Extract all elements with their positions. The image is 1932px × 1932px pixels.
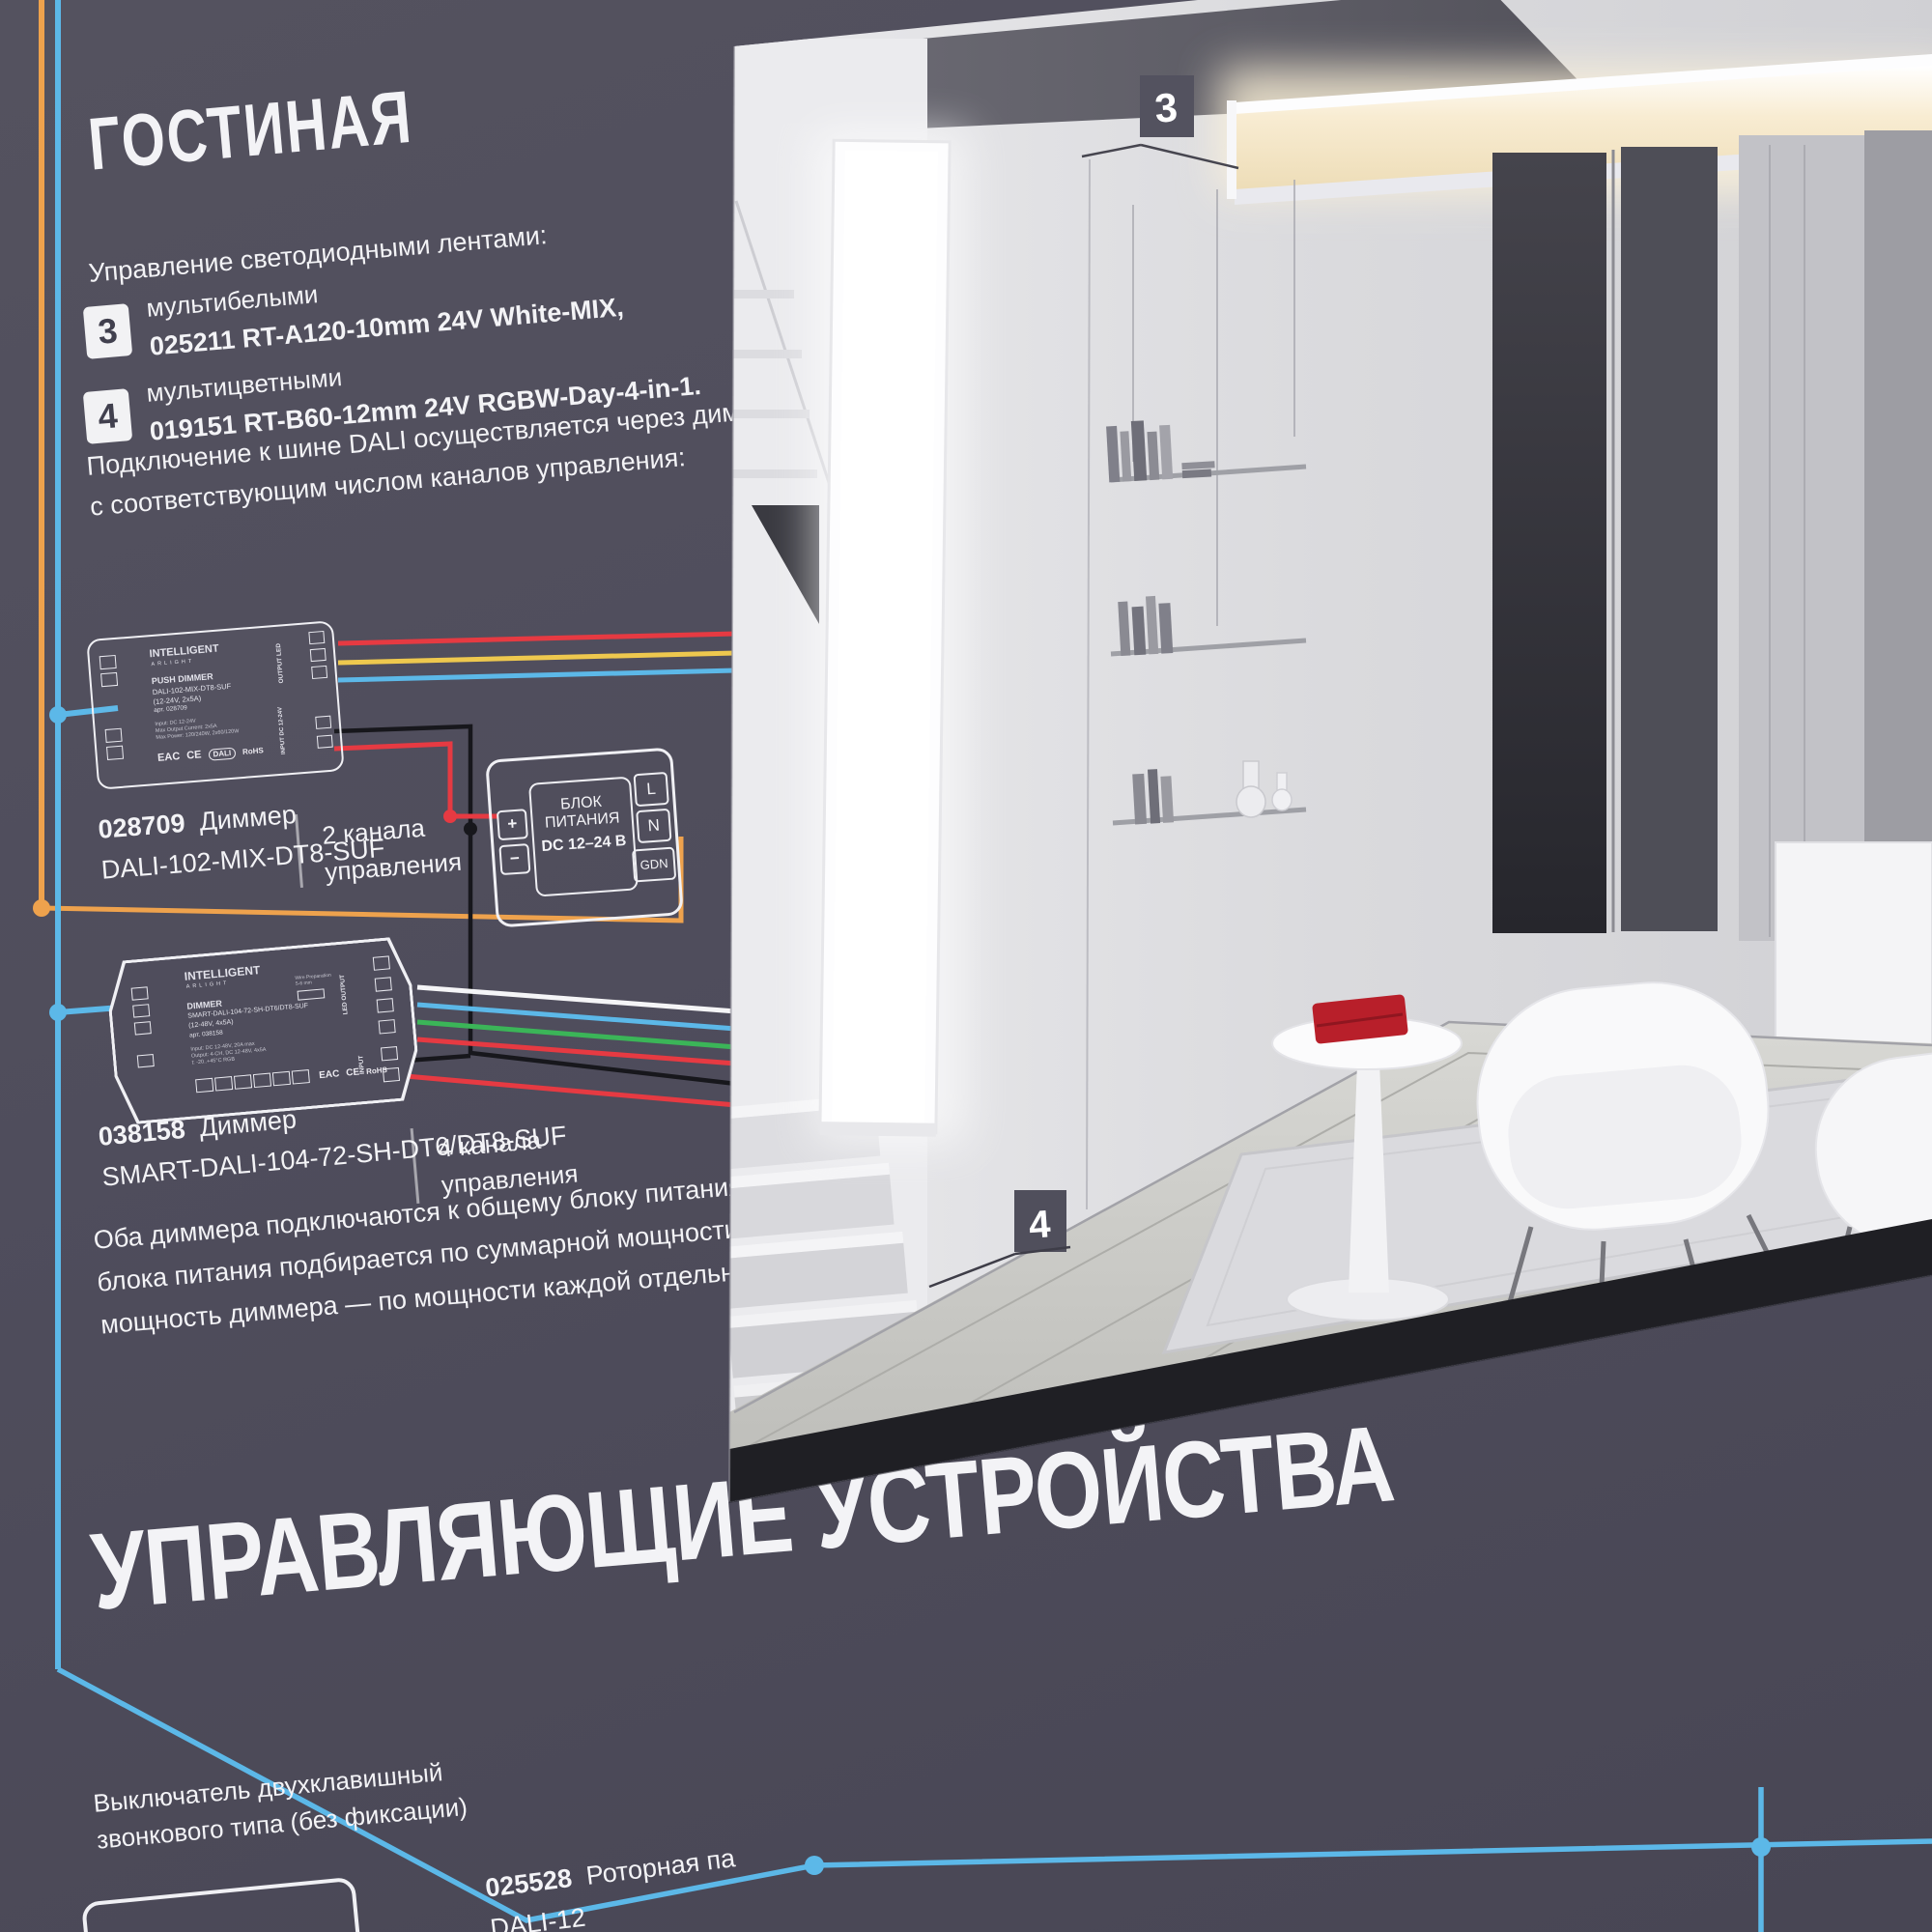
wardrobe-light-column [1739,135,1864,941]
wardrobe-dark-panel-2 [1621,147,1718,931]
interior-scene: 3 4 [709,0,1932,1526]
exhibition-board: ГОСТИНАЯ Управление светодиодными лентам… [0,0,1932,1932]
led-column [820,140,950,1137]
wall-white-panel [1776,842,1932,1047]
interior-render: 3 4 [0,0,1932,1932]
wardrobe-edge-column [1864,130,1932,944]
scene-badge-4-number: 4 [1028,1203,1053,1246]
wardrobe-dark-panel-1 [1492,153,1606,933]
scene-badge-3-number: 3 [1153,84,1179,131]
led-bar-endcap [1227,100,1236,199]
